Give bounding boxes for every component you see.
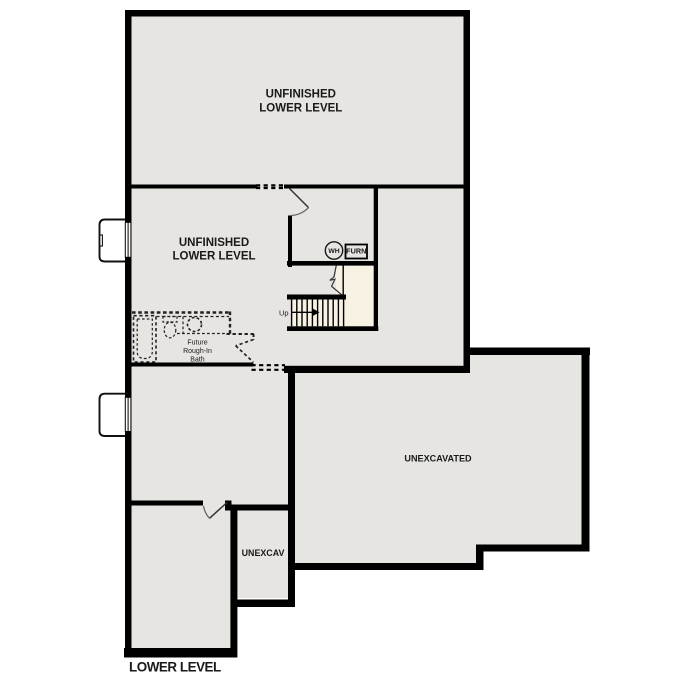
svg-text:FURN: FURN — [346, 246, 366, 255]
svg-text:UNFINISHED: UNFINISHED — [266, 89, 336, 101]
svg-text:UNEXCAV: UNEXCAV — [242, 548, 285, 558]
svg-text:UNEXCAVATED: UNEXCAVATED — [404, 453, 472, 463]
svg-text:WH: WH — [328, 248, 339, 255]
svg-text:Rough-In: Rough-In — [183, 348, 212, 355]
svg-text:Bath: Bath — [190, 357, 205, 364]
svg-text:LOWER LEVEL: LOWER LEVEL — [259, 102, 342, 114]
svg-text:LOWER LEVEL: LOWER LEVEL — [129, 660, 221, 675]
svg-text:Future: Future — [187, 340, 207, 347]
svg-text:LOWER LEVEL: LOWER LEVEL — [172, 251, 255, 263]
svg-text:UNFINISHED: UNFINISHED — [179, 237, 249, 249]
svg-text:Up: Up — [279, 308, 289, 317]
